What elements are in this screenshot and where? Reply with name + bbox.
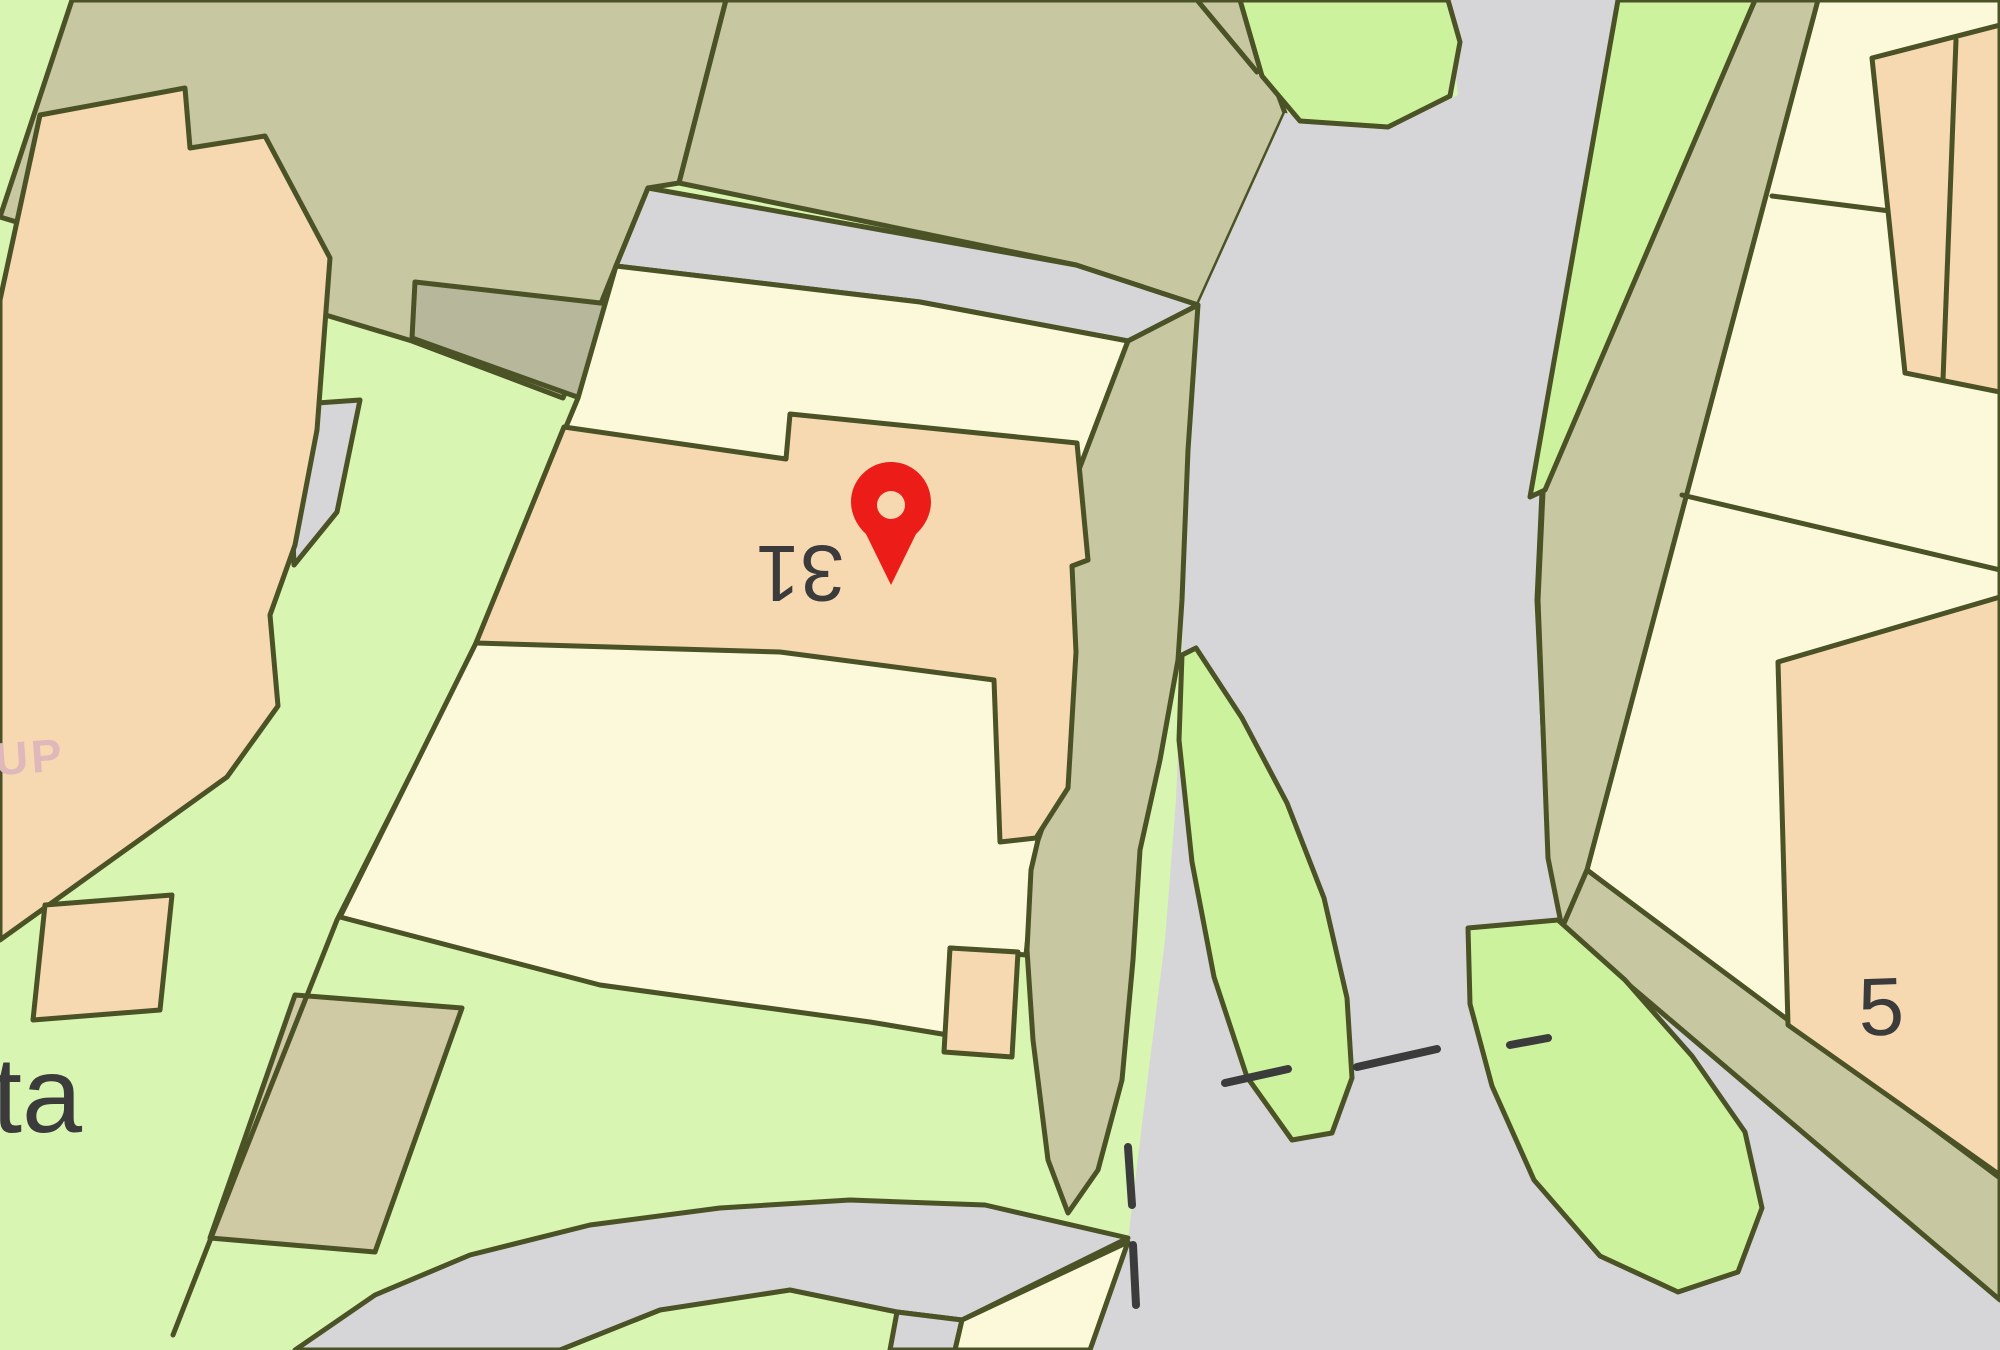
- label-house-31: 31: [756, 529, 845, 618]
- label-faded-fragment: UP: [0, 729, 66, 786]
- label-street-fragment: ta: [0, 1034, 83, 1155]
- map-canvas[interactable]: 31 5 ta UP: [0, 0, 2000, 1350]
- road-dash-2: [1133, 1245, 1136, 1305]
- outbuilding-west: [33, 895, 172, 1020]
- label-house-5: 5: [1857, 961, 1906, 1054]
- outbuilding-centre: [944, 948, 1018, 1057]
- road-dash-1: [1128, 1147, 1132, 1205]
- footpath-stub: [890, 1312, 962, 1350]
